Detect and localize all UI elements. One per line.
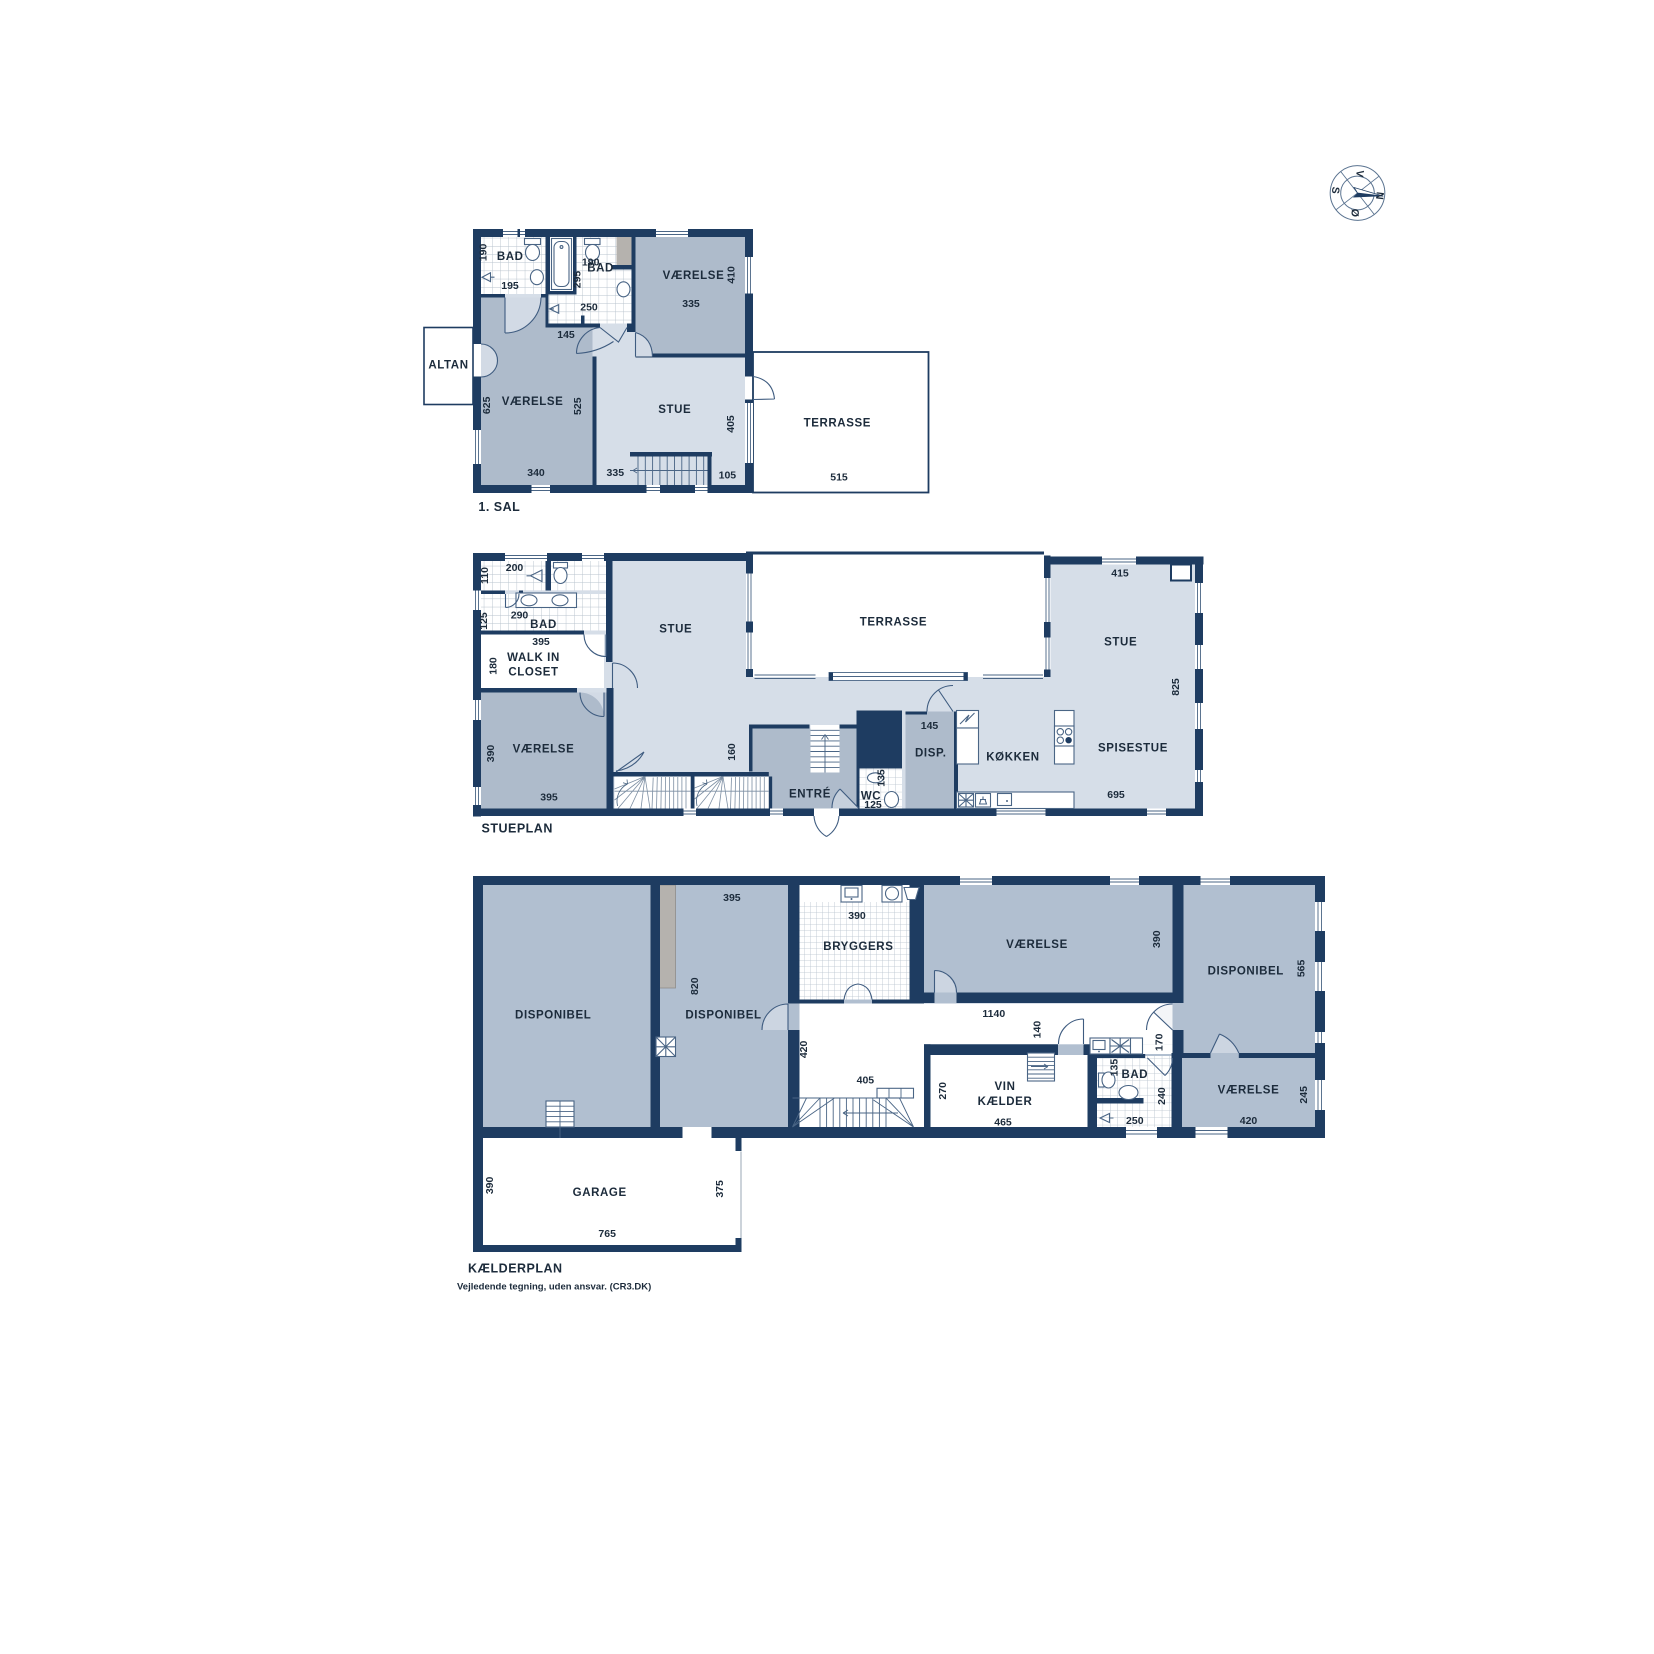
svg-text:180: 180 (488, 657, 500, 675)
svg-text:420: 420 (798, 1040, 810, 1058)
svg-text:270: 270 (937, 1082, 949, 1100)
svg-text:395: 395 (723, 892, 741, 904)
svg-text:DISPONIBEL: DISPONIBEL (685, 1010, 761, 1022)
svg-text:200: 200 (506, 562, 524, 574)
svg-text:375: 375 (714, 1180, 726, 1198)
svg-text:340: 340 (527, 467, 545, 479)
svg-text:KÆLDERPLAN: KÆLDERPLAN (468, 1262, 563, 1276)
svg-text:390: 390 (484, 1176, 496, 1194)
svg-text:125: 125 (864, 799, 882, 811)
svg-text:Vejledende tegning, uden ansva: Vejledende tegning, uden ansvar. (CR3.DK… (457, 1282, 651, 1293)
svg-text:BAD: BAD (530, 619, 557, 631)
svg-text:240: 240 (1156, 1087, 1168, 1105)
svg-text:ENTRÉ: ENTRÉ (789, 788, 831, 801)
svg-text:405: 405 (725, 415, 737, 433)
svg-text:195: 195 (501, 280, 519, 292)
svg-text:GARAGE: GARAGE (573, 1187, 627, 1199)
svg-text:145: 145 (557, 329, 575, 341)
svg-text:110: 110 (479, 567, 491, 584)
svg-text:465: 465 (994, 1116, 1012, 1128)
svg-text:820: 820 (689, 977, 701, 995)
svg-text:290: 290 (511, 610, 529, 622)
svg-text:405: 405 (857, 1074, 875, 1086)
svg-text:1140: 1140 (982, 1008, 1005, 1020)
svg-text:410: 410 (726, 266, 738, 284)
svg-text:Ø: Ø (1348, 208, 1361, 218)
svg-text:STUE: STUE (659, 623, 692, 635)
svg-text:415: 415 (1111, 568, 1129, 580)
svg-text:625: 625 (481, 396, 493, 414)
svg-text:VÆRELSE: VÆRELSE (1006, 939, 1068, 951)
svg-text:250: 250 (580, 302, 598, 314)
svg-text:190: 190 (582, 257, 600, 269)
svg-text:TERRASSE: TERRASSE (860, 617, 927, 629)
svg-text:VÆRELSE: VÆRELSE (1218, 1085, 1280, 1097)
svg-text:VÆRELSE: VÆRELSE (513, 744, 575, 756)
svg-text:V: V (1353, 169, 1366, 177)
svg-text:DISPONIBEL: DISPONIBEL (1208, 965, 1284, 977)
svg-text:395: 395 (532, 636, 550, 648)
svg-text:335: 335 (682, 298, 700, 310)
svg-text:695: 695 (1107, 789, 1125, 801)
svg-text:145: 145 (921, 720, 939, 732)
svg-text:390: 390 (1151, 930, 1163, 948)
svg-text:295: 295 (572, 271, 584, 289)
svg-text:565: 565 (1295, 959, 1307, 977)
svg-text:KØKKEN: KØKKEN (986, 752, 1039, 764)
svg-text:1. SAL: 1. SAL (478, 500, 520, 514)
svg-text:135: 135 (876, 769, 888, 787)
svg-text:515: 515 (830, 471, 848, 483)
svg-text:335: 335 (607, 467, 625, 479)
svg-text:VÆRELSE: VÆRELSE (663, 270, 725, 282)
svg-text:SPISESTUE: SPISESTUE (1098, 743, 1168, 755)
svg-text:390: 390 (848, 910, 866, 922)
svg-text:N: N (1373, 191, 1386, 200)
svg-text:ALTAN: ALTAN (428, 360, 468, 372)
svg-text:VÆRELSE: VÆRELSE (502, 396, 564, 408)
svg-text:525: 525 (572, 397, 584, 415)
svg-text:CLOSET: CLOSET (508, 667, 558, 679)
svg-text:TERRASSE: TERRASSE (804, 418, 871, 430)
svg-text:190: 190 (478, 243, 490, 261)
svg-text:KÆLDER: KÆLDER (978, 1096, 1033, 1108)
svg-text:VIN: VIN (995, 1081, 1016, 1093)
svg-text:160: 160 (726, 743, 738, 761)
svg-text:825: 825 (1170, 678, 1182, 696)
svg-text:DISPONIBEL: DISPONIBEL (515, 1010, 591, 1022)
svg-text:395: 395 (540, 792, 558, 804)
svg-text:170: 170 (1154, 1033, 1166, 1051)
svg-text:135: 135 (1109, 1059, 1121, 1077)
svg-text:245: 245 (1298, 1086, 1310, 1104)
svg-text:140: 140 (1031, 1021, 1043, 1039)
svg-text:BAD: BAD (1121, 1069, 1148, 1081)
svg-text:BAD: BAD (497, 251, 524, 263)
svg-text:390: 390 (485, 745, 497, 763)
svg-text:125: 125 (478, 612, 490, 630)
svg-text:DISP.: DISP. (915, 747, 947, 759)
svg-text:765: 765 (598, 1228, 616, 1240)
svg-text:250: 250 (1126, 1115, 1144, 1127)
svg-text:420: 420 (1240, 1115, 1258, 1127)
svg-text:STUE: STUE (658, 404, 691, 416)
svg-text:STUE: STUE (1104, 637, 1137, 649)
svg-text:BRYGGERS: BRYGGERS (823, 941, 893, 953)
svg-text:105: 105 (719, 470, 737, 482)
svg-text:S: S (1329, 186, 1342, 194)
svg-text:WALK IN: WALK IN (507, 652, 560, 664)
svg-text:STUEPLAN: STUEPLAN (482, 822, 553, 836)
